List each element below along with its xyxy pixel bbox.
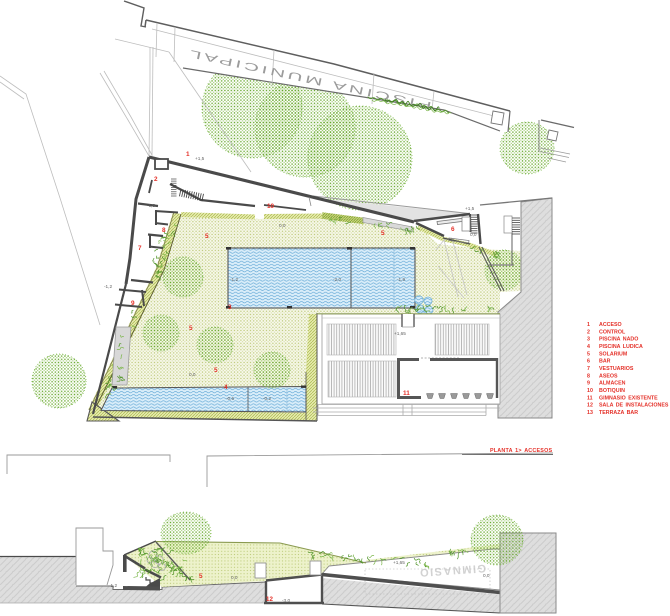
svg-text:-0,2: -0,2	[263, 396, 271, 401]
svg-text:SOLARIUM: SOLARIUM	[599, 351, 628, 357]
svg-text:CONTROL: CONTROL	[599, 329, 626, 335]
svg-text:7: 7	[138, 245, 142, 252]
svg-text:5: 5	[205, 233, 209, 240]
svg-text:-1,2: -1,2	[230, 277, 238, 282]
svg-text:12: 12	[587, 403, 593, 409]
svg-text:3: 3	[587, 337, 590, 343]
svg-text:1: 1	[186, 151, 190, 158]
svg-text:BAR: BAR	[599, 359, 611, 365]
svg-text:ASEOS: ASEOS	[599, 373, 618, 379]
svg-text:4: 4	[224, 384, 228, 391]
svg-text:0,0: 0,0	[483, 573, 490, 578]
svg-text:-1,9: -1,9	[397, 277, 405, 282]
svg-text:6: 6	[587, 359, 590, 365]
svg-text:PISCINA NADO: PISCINA NADO	[599, 337, 638, 343]
svg-text:-1,2: -1,2	[104, 284, 112, 289]
svg-text:0,0: 0,0	[189, 372, 196, 377]
svg-text:0,0: 0,0	[470, 232, 477, 237]
svg-text:10: 10	[587, 388, 593, 394]
svg-text:5: 5	[199, 573, 203, 580]
svg-text:-1,2: -1,2	[109, 583, 117, 588]
svg-text:+1,65: +1,65	[394, 331, 406, 336]
svg-text:1: 1	[587, 322, 590, 328]
svg-text:5: 5	[189, 325, 193, 332]
svg-text:+1,5: +1,5	[195, 156, 205, 161]
svg-text:8: 8	[162, 227, 166, 234]
svg-text:9: 9	[131, 300, 135, 307]
svg-text:TERRAZA BAR: TERRAZA BAR	[599, 410, 638, 416]
svg-text:11: 11	[403, 390, 410, 397]
svg-text:12: 12	[266, 596, 273, 603]
svg-text:7: 7	[587, 366, 590, 372]
svg-text:ALMACEN: ALMACEN	[599, 381, 626, 387]
svg-text:8: 8	[587, 373, 590, 379]
svg-text:2: 2	[587, 329, 590, 335]
svg-text:-1,5: -1,5	[147, 203, 155, 208]
svg-text:2: 2	[154, 176, 158, 183]
svg-text:11: 11	[587, 395, 593, 401]
svg-text:0,0: 0,0	[231, 575, 238, 580]
svg-text:+1,5: +1,5	[465, 206, 475, 211]
svg-text:-0,6: -0,6	[226, 396, 234, 401]
svg-text:4: 4	[587, 344, 590, 350]
svg-text:PISCINA LUDICA: PISCINA LUDICA	[599, 344, 643, 350]
svg-text:VESTUARIOS: VESTUARIOS	[599, 366, 634, 372]
svg-text:SALA DE INSTALACIONES: SALA DE INSTALACIONES	[599, 403, 669, 409]
svg-text:13: 13	[587, 410, 593, 416]
svg-text:0,0: 0,0	[279, 223, 286, 228]
svg-text:10: 10	[267, 203, 275, 210]
svg-text:-3,0: -3,0	[282, 598, 290, 603]
svg-text:ACCESO: ACCESO	[599, 322, 622, 328]
svg-text:9: 9	[587, 381, 590, 387]
svg-text:6: 6	[451, 226, 455, 233]
svg-text:5: 5	[381, 230, 385, 237]
svg-text:+1,65: +1,65	[393, 560, 405, 565]
svg-text:5: 5	[214, 367, 218, 374]
svg-text:-2,0: -2,0	[333, 277, 341, 282]
svg-text:3: 3	[228, 304, 232, 311]
svg-text:GIMNASIO EXISTENTE: GIMNASIO EXISTENTE	[599, 395, 658, 401]
svg-text:BOTIQUIN: BOTIQUIN	[599, 388, 625, 394]
svg-text:5: 5	[587, 351, 590, 357]
